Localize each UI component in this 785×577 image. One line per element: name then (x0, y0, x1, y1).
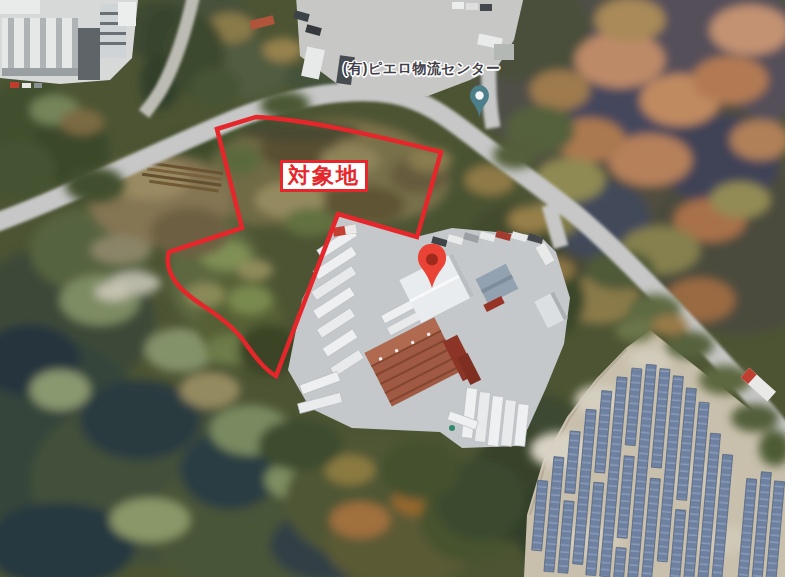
site-label: 対象地 (280, 160, 368, 192)
place-label[interactable]: (有)ピエロ物流センター (343, 60, 513, 78)
site-marker-icon[interactable] (413, 242, 451, 290)
place-pin-icon[interactable] (467, 84, 492, 118)
satellite-map-canvas[interactable]: (有)ピエロ物流センター 対象地 (0, 0, 785, 577)
aerial-imagery (0, 0, 785, 577)
